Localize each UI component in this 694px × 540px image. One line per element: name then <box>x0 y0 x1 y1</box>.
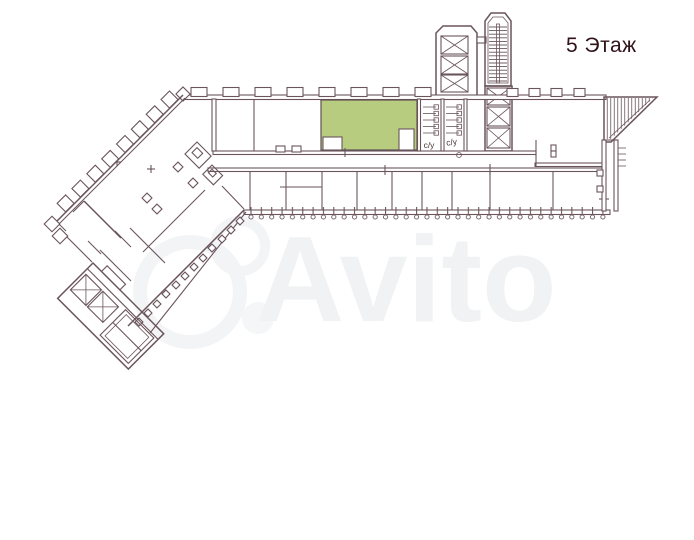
floor-label: 5 Этаж <box>566 34 637 58</box>
right-triangle-stairwell <box>597 97 657 211</box>
pilasters-diagonal-outer <box>57 91 178 212</box>
lower-stair-elevator-block <box>58 257 170 369</box>
bathrooms: с/у с/у <box>418 99 468 158</box>
floor-plan-page: Avito <box>0 0 694 540</box>
floor-plan-drawing: Avito <box>0 0 694 540</box>
corridor-wall <box>535 163 606 167</box>
stairs-icon <box>489 25 507 82</box>
elevator-tower <box>436 26 486 96</box>
bathroom-label: с/у <box>424 140 436 150</box>
watermark-text: Avito <box>256 211 556 347</box>
bathroom-label: с/у <box>446 136 459 148</box>
stairs-icon <box>606 98 653 140</box>
avito-watermark: Avito <box>140 211 556 347</box>
stairwell-tower <box>485 13 511 86</box>
vestibule-room <box>185 142 211 168</box>
corridor-wall <box>213 151 536 155</box>
corridor-wall <box>208 168 606 172</box>
highlighted-room <box>321 100 417 150</box>
colonnade-band <box>246 206 608 221</box>
lower-rooms <box>250 171 553 210</box>
